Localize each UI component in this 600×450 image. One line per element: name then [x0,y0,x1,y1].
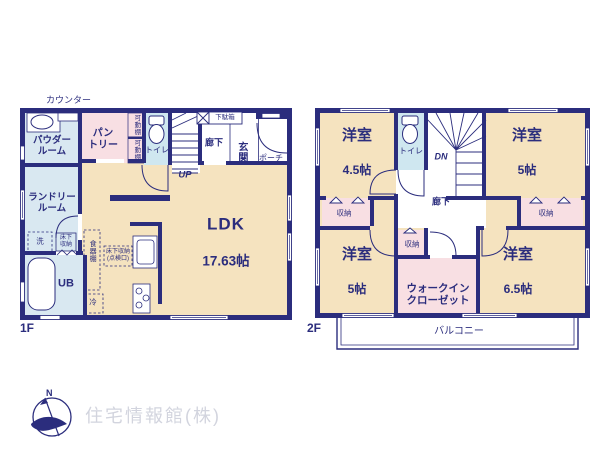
porch-label: ポーチ [259,153,283,162]
closet-ne-label: 収納 [539,210,554,219]
washer-label: 洗 [36,238,44,247]
floorplan-graphics [0,0,600,450]
balcony-label: バルコニー [434,326,484,338]
floor2-label: 2F [307,321,321,335]
counter-label: カウンター [46,95,91,106]
underfloor-inspection-label: 床下収納 (点検口) [106,249,130,263]
company-logo-text: 住宅情報館(株) [85,406,221,427]
floor1-label: 1F [20,321,34,335]
room-sw-label: 洋室 5帖 [342,227,372,315]
toilet-tank-icon [149,116,164,125]
toilet-bowl-icon [149,125,164,144]
stairs-up-label: UP [178,169,191,180]
powder-room-label: パウダー ルーム [33,135,71,157]
toilet2-icon [402,116,418,144]
entrance-label: 玄関 [235,142,247,163]
movable-shelf-label-1: 可動棚 [132,115,140,136]
movable-shelf-label-2: 可動棚 [132,140,140,161]
room-se-label: 洋室 6.5帖 [503,227,533,315]
cupboard-label: 食器棚 [88,240,96,263]
unit-bath-label: UB [58,278,74,291]
fridge-label: 冷 [89,299,97,308]
underfloor-storage-label: 床下 収納 [60,235,72,249]
floorplan-page: カウンター パウダー ルーム ランドリー ルーム UB パン トリー 可動棚 可… [0,0,600,450]
room-ne-label: 洋室 5帖 [512,108,542,196]
closet-center-label: 収納 [405,241,420,250]
shoe-cabinet-label: 下駄箱 [215,114,235,122]
north-mark-label: N [46,388,53,399]
hallway-2f-label: 廊下 [432,197,450,208]
closet-nw-label: 収納 [337,210,352,219]
logo-bird-shape [31,417,67,431]
toilet-1f-label: トイレ [145,145,169,154]
room-nw-label: 洋室 4.5帖 [342,108,372,196]
stairs-down-label: DN [435,152,448,163]
walk-in-closet-label: ウォークイン クローゼット [407,283,470,308]
kitchen-sink-bowl [137,240,154,264]
north-compass-icon [31,398,71,436]
pantry-label: パン トリー [88,128,118,152]
hallway-1f-label: 廊下 [205,138,223,149]
vanity-sink-icon [31,115,53,129]
counter-icon [58,113,78,121]
ldk-label: LDK 17.63帖 [202,196,249,289]
bathtub-icon [28,258,55,310]
laundry-room-label: ランドリー ルーム [28,192,76,214]
toilet-2f-label: トイレ [399,146,423,155]
